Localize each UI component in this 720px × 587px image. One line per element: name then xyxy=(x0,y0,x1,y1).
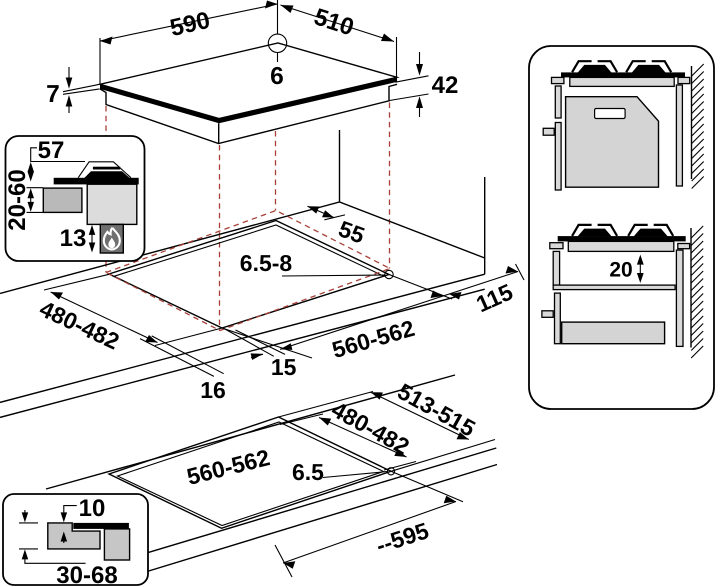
svg-text:6: 6 xyxy=(270,63,284,90)
svg-text:42: 42 xyxy=(432,72,459,99)
svg-text:15: 15 xyxy=(271,354,297,380)
svg-text:13: 13 xyxy=(60,225,87,252)
svg-text:10: 10 xyxy=(79,495,106,522)
svg-text:6.5-8: 6.5-8 xyxy=(240,250,293,276)
svg-text:16: 16 xyxy=(200,377,226,403)
svg-text:7: 7 xyxy=(46,81,60,108)
svg-text:6.5: 6.5 xyxy=(292,459,324,485)
svg-text:20: 20 xyxy=(609,259,632,282)
svg-text:30-68: 30-68 xyxy=(56,562,117,587)
svg-text:20-60: 20-60 xyxy=(4,169,31,230)
svg-text:57: 57 xyxy=(38,137,65,164)
